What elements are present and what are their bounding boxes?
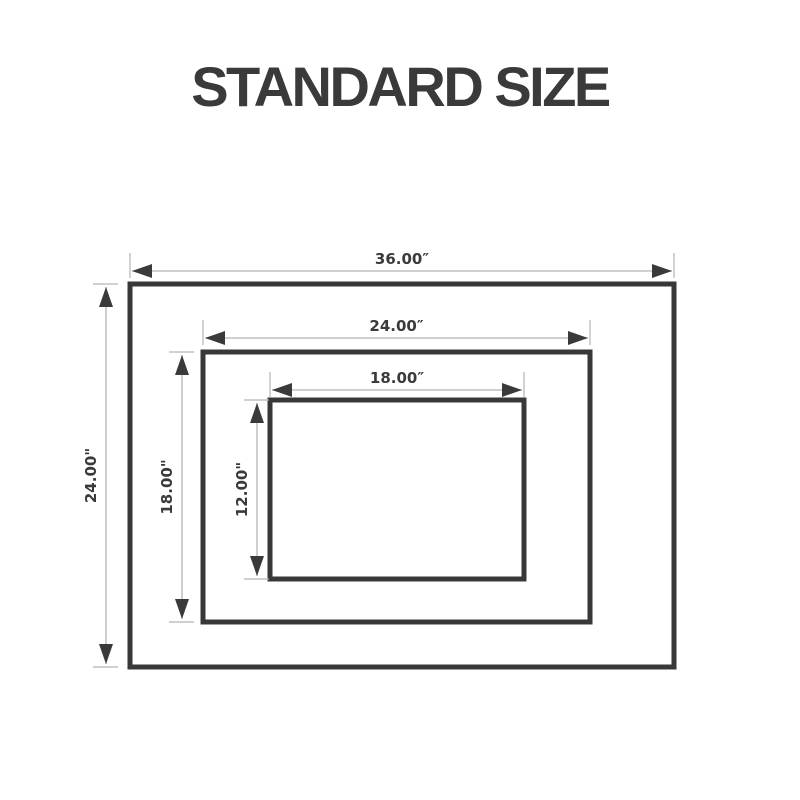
outer-width-arrowhead-left <box>132 264 152 278</box>
outer-width-label: 36.00″ <box>375 250 429 268</box>
inner-width-label: 18.00″ <box>370 369 424 387</box>
middle-width-label: 24.00″ <box>369 317 423 335</box>
outer-width-arrowhead-right <box>652 264 672 278</box>
dimension-diagram: 36.00″24.00"24.00″18.00"18.00″12.00" <box>0 0 800 800</box>
diagram-canvas: STANDARD SIZE 36.00″24.00"24.00″18.00"18… <box>0 0 800 800</box>
middle-height-label: 18.00" <box>158 459 176 514</box>
outer-height-arrowhead-top <box>99 287 113 307</box>
outer-height-label: 24.00" <box>82 448 100 503</box>
inner-height-label: 12.00" <box>233 462 251 517</box>
outer-height-arrowhead-bottom <box>99 644 113 664</box>
inner-rectangle <box>270 400 524 579</box>
